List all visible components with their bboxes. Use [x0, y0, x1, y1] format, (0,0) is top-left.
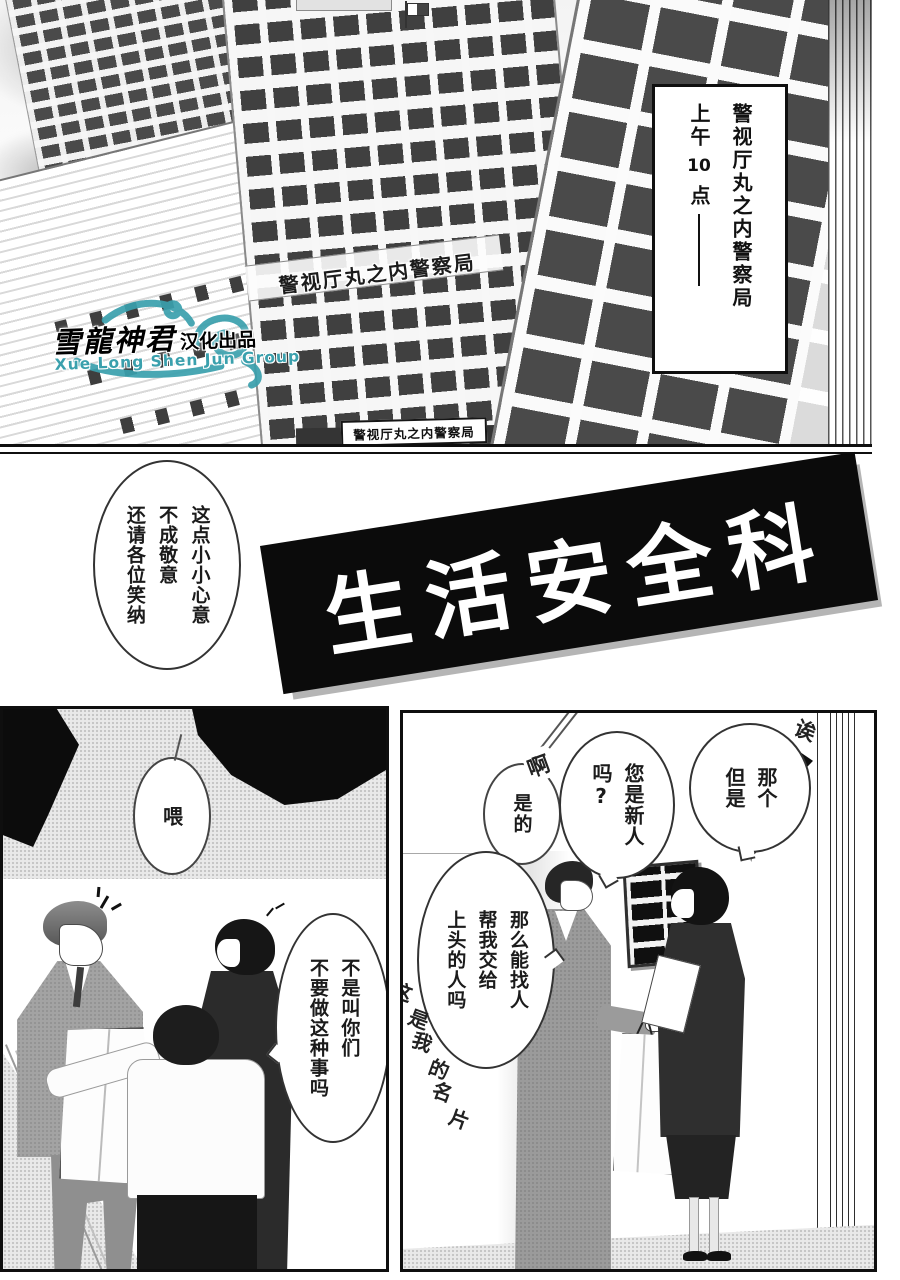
- division-signboard: 生活安全科: [260, 452, 878, 694]
- caption-dash: [698, 214, 700, 286]
- shoe-silhouette-left: [0, 706, 79, 847]
- manga-page: 警视厅丸之内警察局 警视厅丸之内警察局 警视厅丸之内警察局 上午10点: [0, 0, 900, 1280]
- speech-bubble-that: 那个 但是: [689, 723, 811, 853]
- panel-hallway-right: 是的 啊 您是新人 吗? 那个 但是 诶 那么能找人 帮我交给 上头的人吗 这是…: [400, 710, 877, 1272]
- bubble-tail: [738, 844, 756, 862]
- woman-left-face: [217, 939, 240, 967]
- bubble-tail: [174, 734, 182, 761]
- caption-box: 警视厅丸之内警察局 上午10点: [652, 84, 788, 374]
- speech-bubble-yes: 是的: [483, 763, 561, 865]
- young-man-shirt: [127, 1059, 265, 1199]
- woman-right-face: [671, 889, 694, 918]
- speech-bubble-newcomer: 您是新人 吗?: [559, 731, 675, 879]
- door-frame-lines: [830, 713, 856, 1269]
- panel-cityscape: 警视厅丸之内警察局 警视厅丸之内警察局 警视厅丸之内警察局 上午10点: [0, 0, 872, 447]
- bubble-tail: [598, 868, 618, 888]
- young-man-pants: [137, 1195, 257, 1272]
- caption-location: 警视厅丸之内警察局: [720, 103, 762, 361]
- speech-bubble-scold: 不是叫你们 不要做这种事吗: [275, 913, 389, 1143]
- speech-bubble-gift: 这点小小心意 不成敬意 还请各位笑纳: [93, 460, 241, 670]
- caption-text: 警视厅丸之内警察局 上午10点: [678, 103, 762, 361]
- flag-icon: [407, 3, 429, 16]
- woman-right-skirt: [663, 1135, 739, 1199]
- suit-man-face: [560, 880, 593, 911]
- building-far-right-edge: [828, 0, 872, 447]
- watermark-logo: 雪龍神君 汉化出品 Xue Long Shen Jun Group: [46, 286, 287, 398]
- door-frame-line: [817, 713, 819, 1269]
- young-man-hair: [153, 1005, 219, 1065]
- woman-right-shoe: [683, 1251, 707, 1261]
- speech-bubble-hey: 喂: [133, 757, 211, 875]
- entrance-sign: 警视厅丸之内警察局: [341, 417, 488, 447]
- panel-divider-line: [0, 452, 872, 454]
- rooftop-structure: [296, 0, 392, 11]
- panel-hallway-left: 喂 不是叫你们 不要做这种事吗: [0, 706, 389, 1272]
- division-sign-text: 生活安全科: [300, 470, 837, 675]
- floor: [403, 1221, 874, 1269]
- woman-right-leg: [689, 1197, 699, 1253]
- woman-right-leg: [709, 1197, 719, 1253]
- caption-time: 上午10点: [678, 103, 720, 361]
- woman-right-shoe: [707, 1251, 731, 1261]
